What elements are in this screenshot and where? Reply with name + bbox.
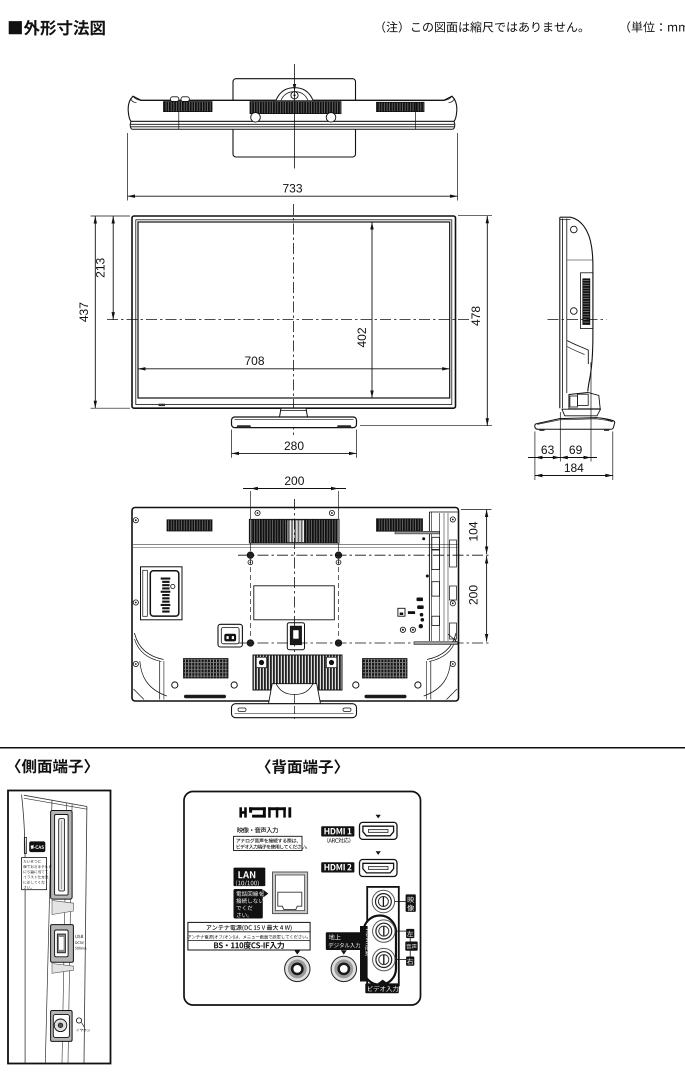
svg-text:184: 184 — [564, 461, 584, 475]
svg-text:402: 402 — [355, 327, 369, 347]
svg-text:213: 213 — [94, 257, 108, 277]
svg-text:733: 733 — [282, 182, 302, 196]
svg-text:478: 478 — [469, 306, 483, 326]
svg-text:708: 708 — [244, 354, 264, 368]
svg-text:200: 200 — [284, 474, 304, 488]
svg-text:200: 200 — [467, 585, 481, 605]
svg-text:104: 104 — [467, 521, 481, 541]
svg-text:280: 280 — [284, 439, 304, 453]
svg-text:69: 69 — [569, 443, 583, 457]
svg-text:437: 437 — [77, 302, 91, 322]
svg-text:63: 63 — [541, 443, 555, 457]
